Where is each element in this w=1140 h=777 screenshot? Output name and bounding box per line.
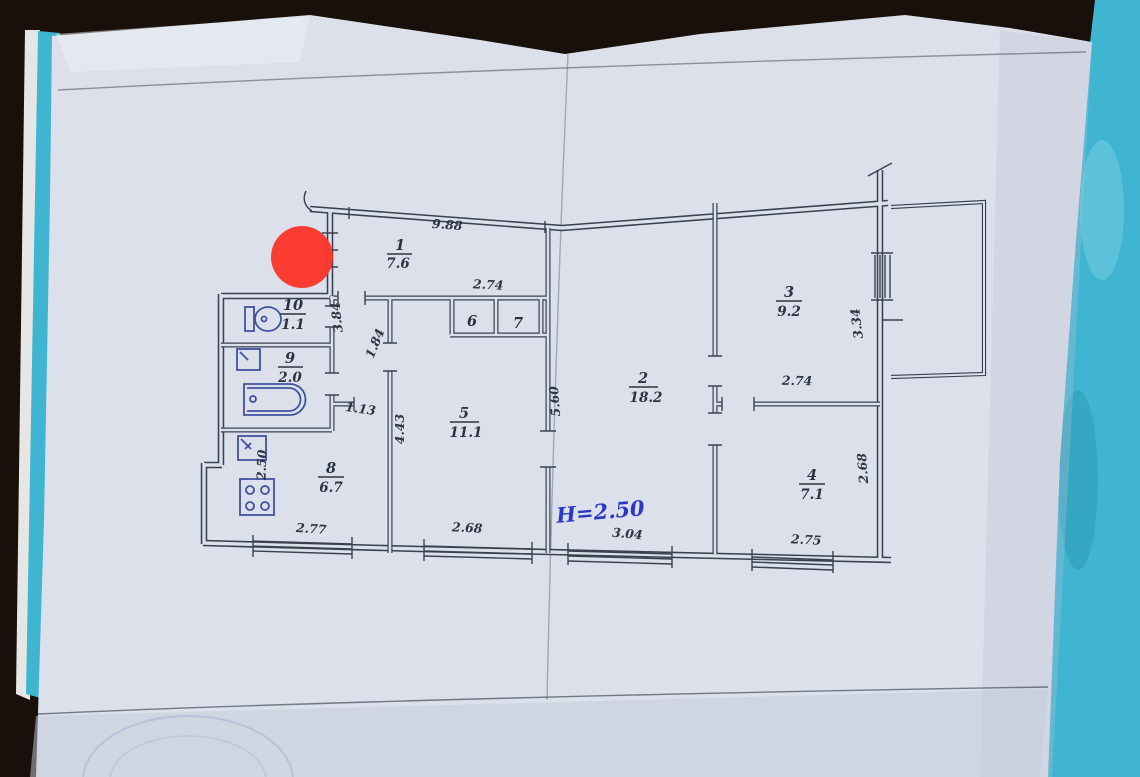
paper-sheet [36, 15, 1092, 777]
room-9-area: 2.0 [277, 370, 302, 386]
room-4-area: 7.1 [800, 487, 824, 503]
dim-room2-window: 3.04 [612, 525, 644, 543]
dim-bath-block-depth: 3.84 [327, 302, 345, 334]
dim-kitchen-depth: 2.50 [253, 449, 269, 481]
room-10-area: 1.1 [281, 317, 305, 333]
floor-plan-photo: 1 7.6 2 18.2 3 9.2 4 7.1 5 [0, 0, 1140, 777]
dim-room5-depth: 4.43 [392, 413, 407, 444]
dim-room2-depth: 5.60 [546, 385, 563, 417]
room-6-number: 6 [467, 313, 477, 330]
dim-room4-depth: 2.68 [854, 452, 871, 485]
room-4-number: 4 [807, 467, 817, 484]
dim-room5-window: 2.68 [451, 519, 483, 536]
room-1-number: 1 [395, 237, 405, 254]
photo-of-floor-plan: 1 7.6 2 18.2 3 9.2 4 7.1 5 [0, 0, 1140, 777]
room-8-number: 8 [326, 460, 336, 477]
room-2-area: 18.2 [630, 390, 663, 406]
dim-closet-row-width: 2.74 [472, 276, 504, 293]
room-3-number: 3 [784, 284, 794, 301]
room-10-number: 10 [283, 297, 303, 314]
room-1-area: 7.6 [386, 256, 410, 272]
room-9-number: 9 [285, 350, 295, 367]
fabric-highlight [1080, 140, 1124, 280]
room-5-number: 5 [459, 405, 469, 422]
room-2-number: 2 [637, 370, 648, 387]
dim-kitchen-window: 2.77 [295, 520, 328, 537]
room-5-area: 11.1 [450, 425, 483, 441]
room-7-number: 7 [513, 315, 523, 332]
dim-top-width: 9.88 [432, 216, 464, 233]
room-8-area: 6.7 [319, 480, 343, 496]
red-marker-dot [271, 226, 333, 288]
dim-room4-window: 2.75 [790, 531, 822, 548]
dim-room3-width: 2.74 [781, 373, 813, 389]
room-3-area: 9.2 [777, 304, 801, 320]
